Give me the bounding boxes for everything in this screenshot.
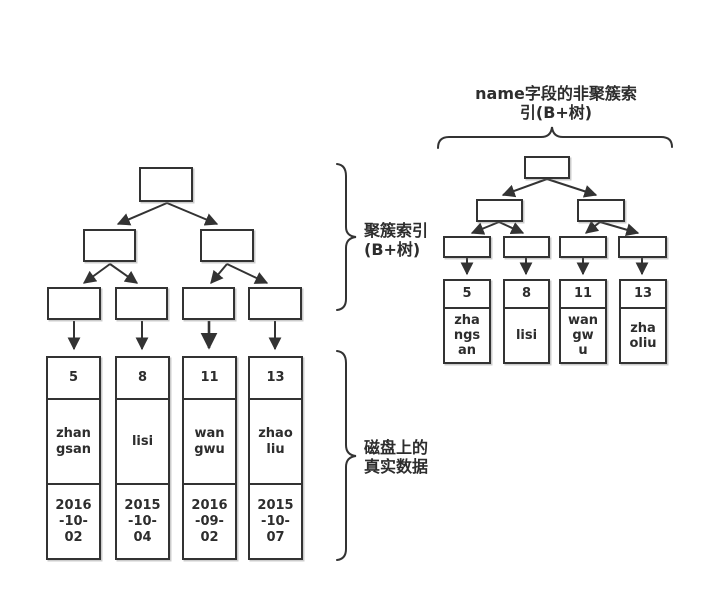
index-key-block-3: 11 wan gw u (559, 279, 607, 364)
record-id: 11 (184, 358, 235, 398)
record-date: 2016 -10- 02 (48, 483, 99, 558)
disk-data-label: 磁盘上的 真实数据 (364, 438, 428, 476)
key-name: zha oliu (621, 307, 665, 362)
index-key-block-1: 5 zha ngs an (443, 279, 491, 364)
clustered-internal-node-left (83, 229, 136, 262)
nonclustered-leaf-node-2 (503, 236, 550, 258)
disk-record-3: 11 wan gwu 2016 -09- 02 (182, 356, 237, 560)
nonclustered-index-title: name字段的非聚簇索 引(B+树) (446, 84, 666, 122)
record-id: 8 (117, 358, 168, 398)
nonclustered-leaf-node-1 (443, 236, 491, 258)
key-id: 8 (505, 281, 548, 307)
arrow-clustered-left-to-leaf2 (110, 264, 137, 283)
record-name: zhao liu (250, 398, 301, 483)
key-id: 5 (445, 281, 489, 307)
nonclustered-internal-node-right (577, 199, 625, 222)
arrow-nonclustered-left-to-leaf2 (499, 222, 523, 233)
key-id: 13 (621, 281, 665, 307)
record-id: 13 (250, 358, 301, 398)
nonclustered-leaf-node-3 (559, 236, 607, 258)
brace-nonclustered-index (438, 127, 672, 148)
arrow-clustered-root-to-right (167, 203, 217, 224)
record-date: 2015 -10- 04 (117, 483, 168, 558)
arrow-clustered-right-to-leaf3 (211, 264, 227, 283)
clustered-leaf-node-2 (115, 287, 168, 320)
arrow-clustered-root-to-left (118, 203, 167, 224)
arrow-nonclustered-left-to-leaf1 (472, 222, 499, 233)
nonclustered-root-node (524, 156, 570, 179)
record-date: 2016 -09- 02 (184, 483, 235, 558)
brace-clustered-index (337, 164, 356, 310)
key-id: 11 (561, 281, 605, 307)
clustered-internal-node-right (200, 229, 254, 262)
record-id: 5 (48, 358, 99, 398)
arrow-clustered-left-to-leaf1 (84, 264, 110, 283)
record-name: lisi (117, 398, 168, 483)
record-name: zhan gsan (48, 398, 99, 483)
arrow-nonclustered-root-to-right (547, 179, 596, 195)
nonclustered-internal-node-left (476, 199, 523, 222)
clustered-leaf-node-1 (47, 287, 101, 320)
brace-disk-data (337, 351, 356, 560)
disk-record-2: 8 lisi 2015 -10- 04 (115, 356, 170, 560)
nonclustered-leaf-node-4 (618, 236, 667, 258)
index-diagram: name字段的非聚簇索 引(B+树) 聚簇索引 (B+树) 磁盘上的 真实数据 … (0, 0, 702, 591)
disk-record-4: 13 zhao liu 2015 -10- 07 (248, 356, 303, 560)
disk-record-1: 5 zhan gsan 2016 -10- 02 (46, 356, 101, 560)
index-key-block-2: 8 lisi (503, 279, 550, 364)
arrow-nonclustered-right-to-leaf3 (586, 222, 600, 233)
index-key-block-4: 13 zha oliu (619, 279, 667, 364)
clustered-leaf-node-4 (248, 287, 302, 320)
clustered-index-label: 聚簇索引 (B+树) (364, 221, 428, 259)
key-name: lisi (505, 307, 548, 362)
record-name: wan gwu (184, 398, 235, 483)
arrow-nonclustered-right-to-leaf4 (600, 222, 638, 233)
arrow-clustered-right-to-leaf4 (227, 264, 267, 283)
record-date: 2015 -10- 07 (250, 483, 301, 558)
clustered-root-node (139, 167, 193, 202)
key-name: zha ngs an (445, 307, 489, 362)
key-name: wan gw u (561, 307, 605, 362)
clustered-leaf-node-3 (182, 287, 235, 320)
arrow-nonclustered-root-to-left (503, 179, 547, 195)
